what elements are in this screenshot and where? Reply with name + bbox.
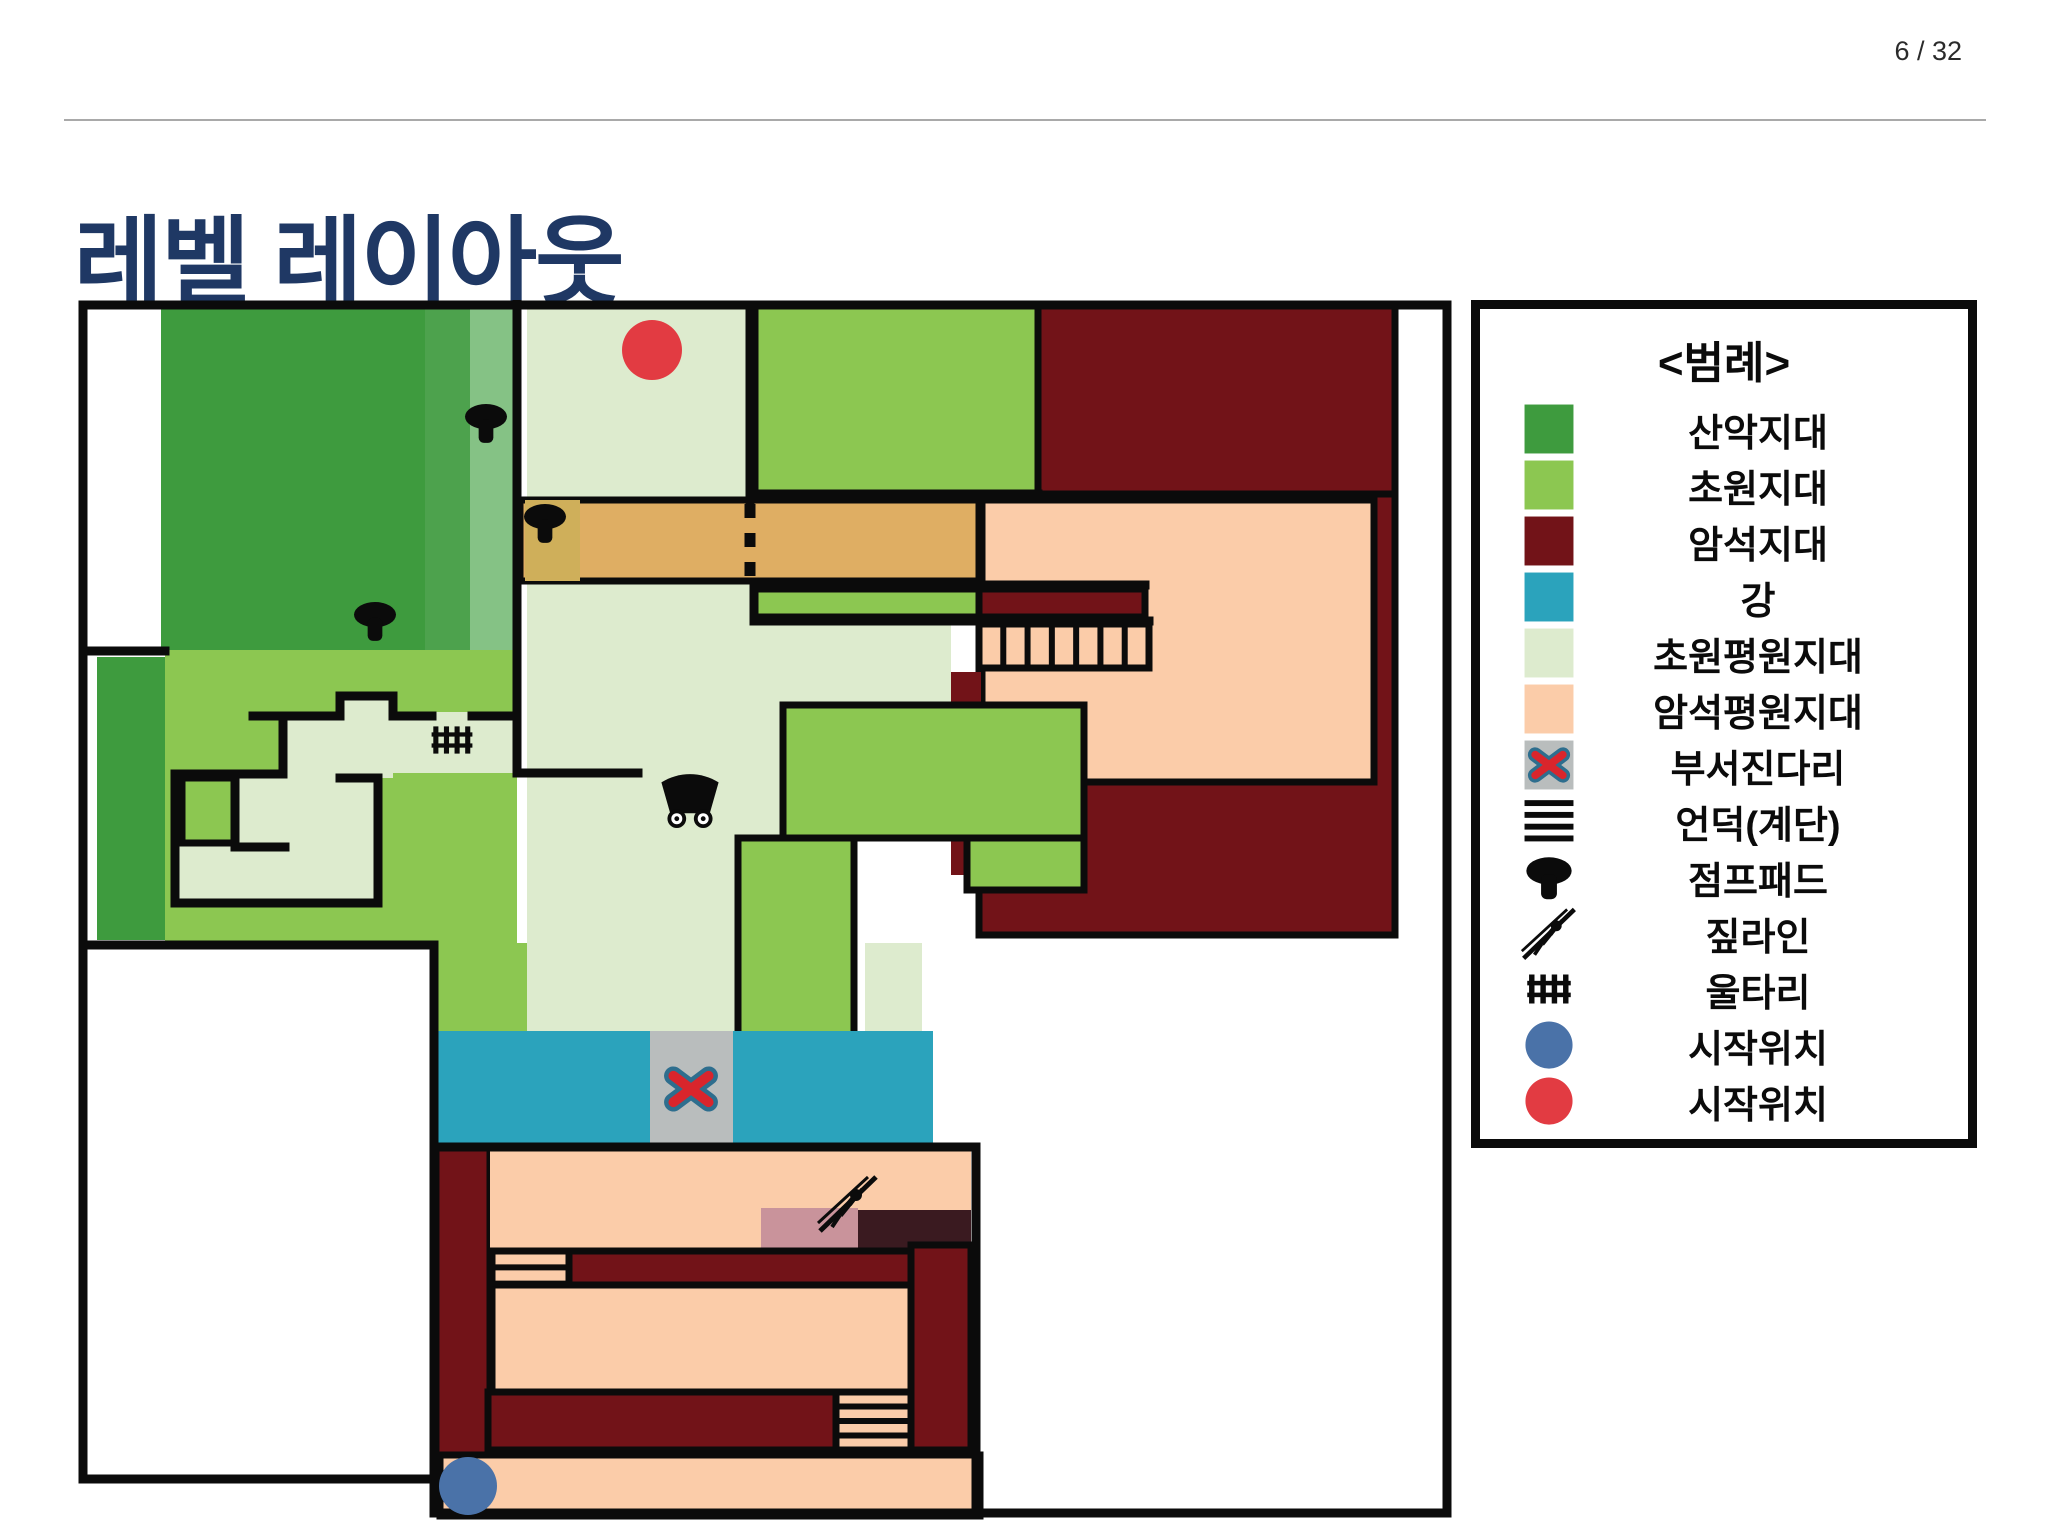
region-grass: [783, 705, 1084, 838]
start-position-red-icon: [1520, 1072, 1584, 1130]
legend-item-label: 초원지대: [1584, 458, 1968, 513]
broken-bridge-icon: [673, 1076, 708, 1102]
legend-rows: 산악지대초원지대암석지대강초원평원지대암석평원지대부서진다리언덕(계단)점프패드…: [1480, 395, 1968, 1143]
region-rock: [911, 1245, 971, 1450]
rock-zone-icon: [1520, 512, 1584, 570]
region-grass: [967, 838, 1084, 890]
rock-plain-zone-icon: [1520, 680, 1584, 738]
grass-plain-zone-icon: [1520, 624, 1584, 682]
legend-item-label: 언덕(계단): [1584, 794, 1968, 849]
legend-panel: <범례> 산악지대초원지대암석지대강초원평원지대암석평원지대부서진다리언덕(계단…: [1471, 300, 1977, 1148]
legend-item-label: 짚라인: [1584, 906, 1968, 961]
legend-item-label: 산악지대: [1584, 402, 1968, 457]
mountain-zone-icon: [1520, 400, 1584, 458]
river-icon: [1520, 568, 1584, 626]
broken-bridge-icon: [1520, 736, 1584, 794]
legend-item-rock-zone: 암석지대: [1480, 513, 1968, 569]
region-rock: [979, 589, 1145, 617]
legend-item-fence: 울타리: [1480, 961, 1968, 1017]
grass-zone-icon: [1520, 456, 1584, 514]
region-mountain: [97, 657, 165, 940]
legend-item-river: 강: [1480, 569, 1968, 625]
region-grass: [738, 838, 854, 1035]
legend-item-label: 울타리: [1584, 962, 1968, 1017]
legend-item-grass-zone: 초원지대: [1480, 457, 1968, 513]
region-plainGrass: [283, 712, 340, 778]
region-plainGrass: [340, 692, 393, 778]
legend-title: <범례>: [1480, 309, 1968, 395]
level-map: [78, 300, 1453, 1520]
header-divider: [64, 119, 1986, 121]
hill-stairs-icon: [1520, 792, 1584, 850]
region-rock: [436, 1147, 490, 1455]
legend-item-hill-stairs: 언덕(계단): [1480, 793, 1968, 849]
legend-item-label: 점프패드: [1584, 850, 1968, 905]
legend-item-label: 암석평원지대: [1584, 682, 1968, 737]
page-number: 6 / 32: [1894, 36, 1962, 67]
legend-item-mountain-zone: 산악지대: [1480, 401, 1968, 457]
start-position-red: [622, 320, 682, 380]
region-mountainMid: [425, 306, 470, 650]
region-grass: [755, 306, 1038, 494]
level-map-svg: [78, 300, 1453, 1520]
legend-item-grass-plain-zone: 초원평원지대: [1480, 625, 1968, 681]
start-position-blue-icon: [1520, 1016, 1584, 1074]
legend-item-label: 강: [1584, 570, 1968, 625]
legend-item-label: 시작위치: [1584, 1074, 1968, 1129]
legend-item-start-position-red: 시작위치: [1480, 1073, 1968, 1129]
region-plainGrass: [527, 581, 755, 617]
region-plainGrass: [527, 617, 951, 705]
zipline-icon: [1520, 904, 1584, 962]
region-grass: [182, 778, 235, 843]
region-plainGrass: [865, 943, 922, 1035]
legend-item-label: 시작위치: [1584, 1018, 1968, 1073]
region-rock: [488, 1392, 836, 1450]
fence-icon: [1520, 960, 1584, 1018]
start-position-blue: [439, 1457, 497, 1515]
legend-item-jump-pad: 점프패드: [1480, 849, 1968, 905]
legend-item-start-position-blue: 시작위치: [1480, 1017, 1968, 1073]
legend-item-label: 암석지대: [1584, 514, 1968, 569]
legend-item-zipline: 짚라인: [1480, 905, 1968, 961]
legend-item-label: 초원평원지대: [1584, 626, 1968, 681]
region-plainRock: [492, 1285, 911, 1392]
region-mountainSage: [470, 306, 517, 650]
legend-item-label: 부서진다리: [1584, 738, 1968, 793]
region-rock: [1038, 306, 1395, 494]
jump-pad-icon: [1520, 848, 1584, 906]
legend-item-rock-plain-zone: 암석평원지대: [1480, 681, 1968, 737]
region-plainRock: [440, 1455, 980, 1516]
legend-item-broken-bridge: 부서진다리: [1480, 737, 1968, 793]
region-grass: [754, 589, 979, 617]
